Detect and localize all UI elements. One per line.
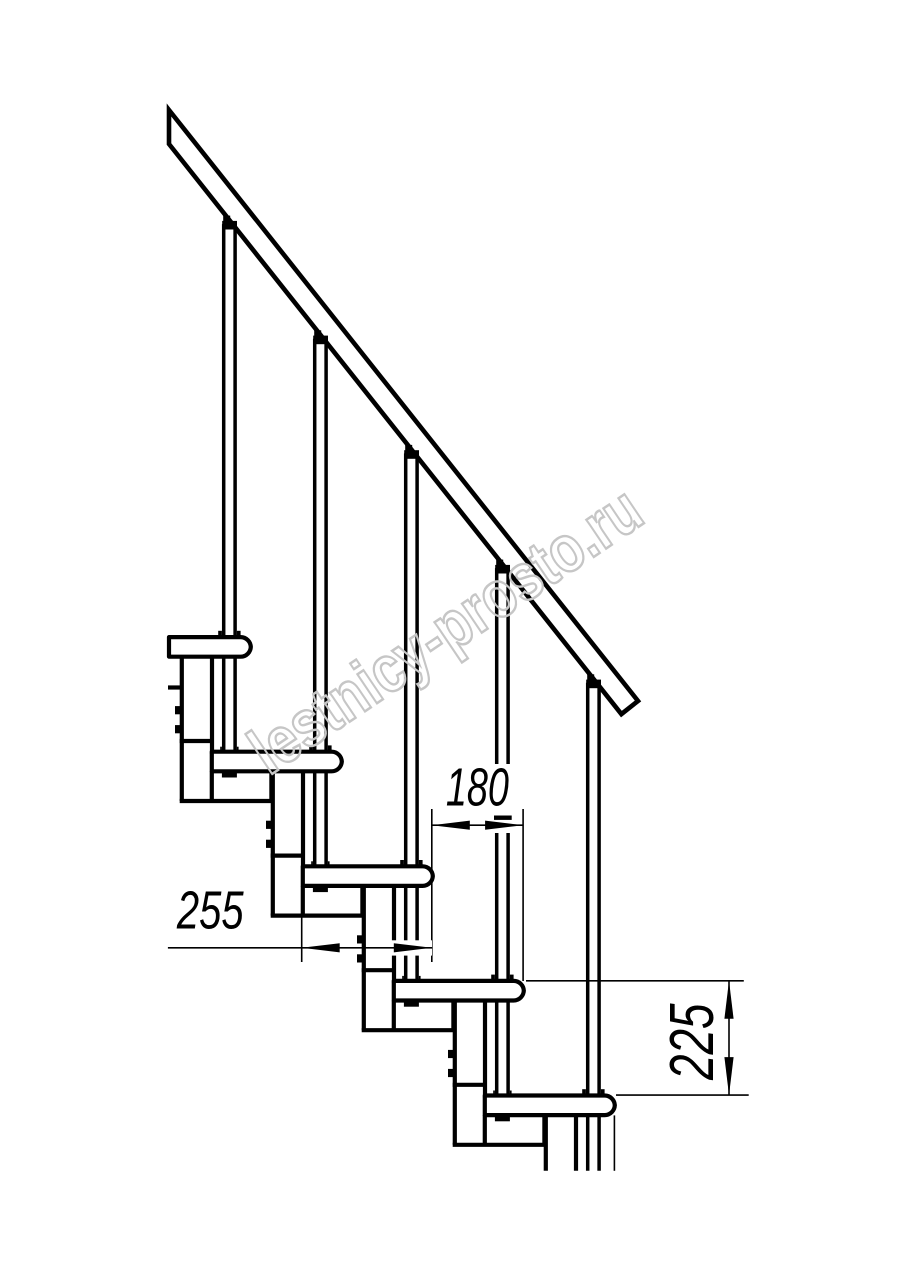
svg-text:255: 255 xyxy=(176,881,244,941)
svg-text:225: 225 xyxy=(657,1003,726,1081)
svg-text:180: 180 xyxy=(446,757,509,817)
